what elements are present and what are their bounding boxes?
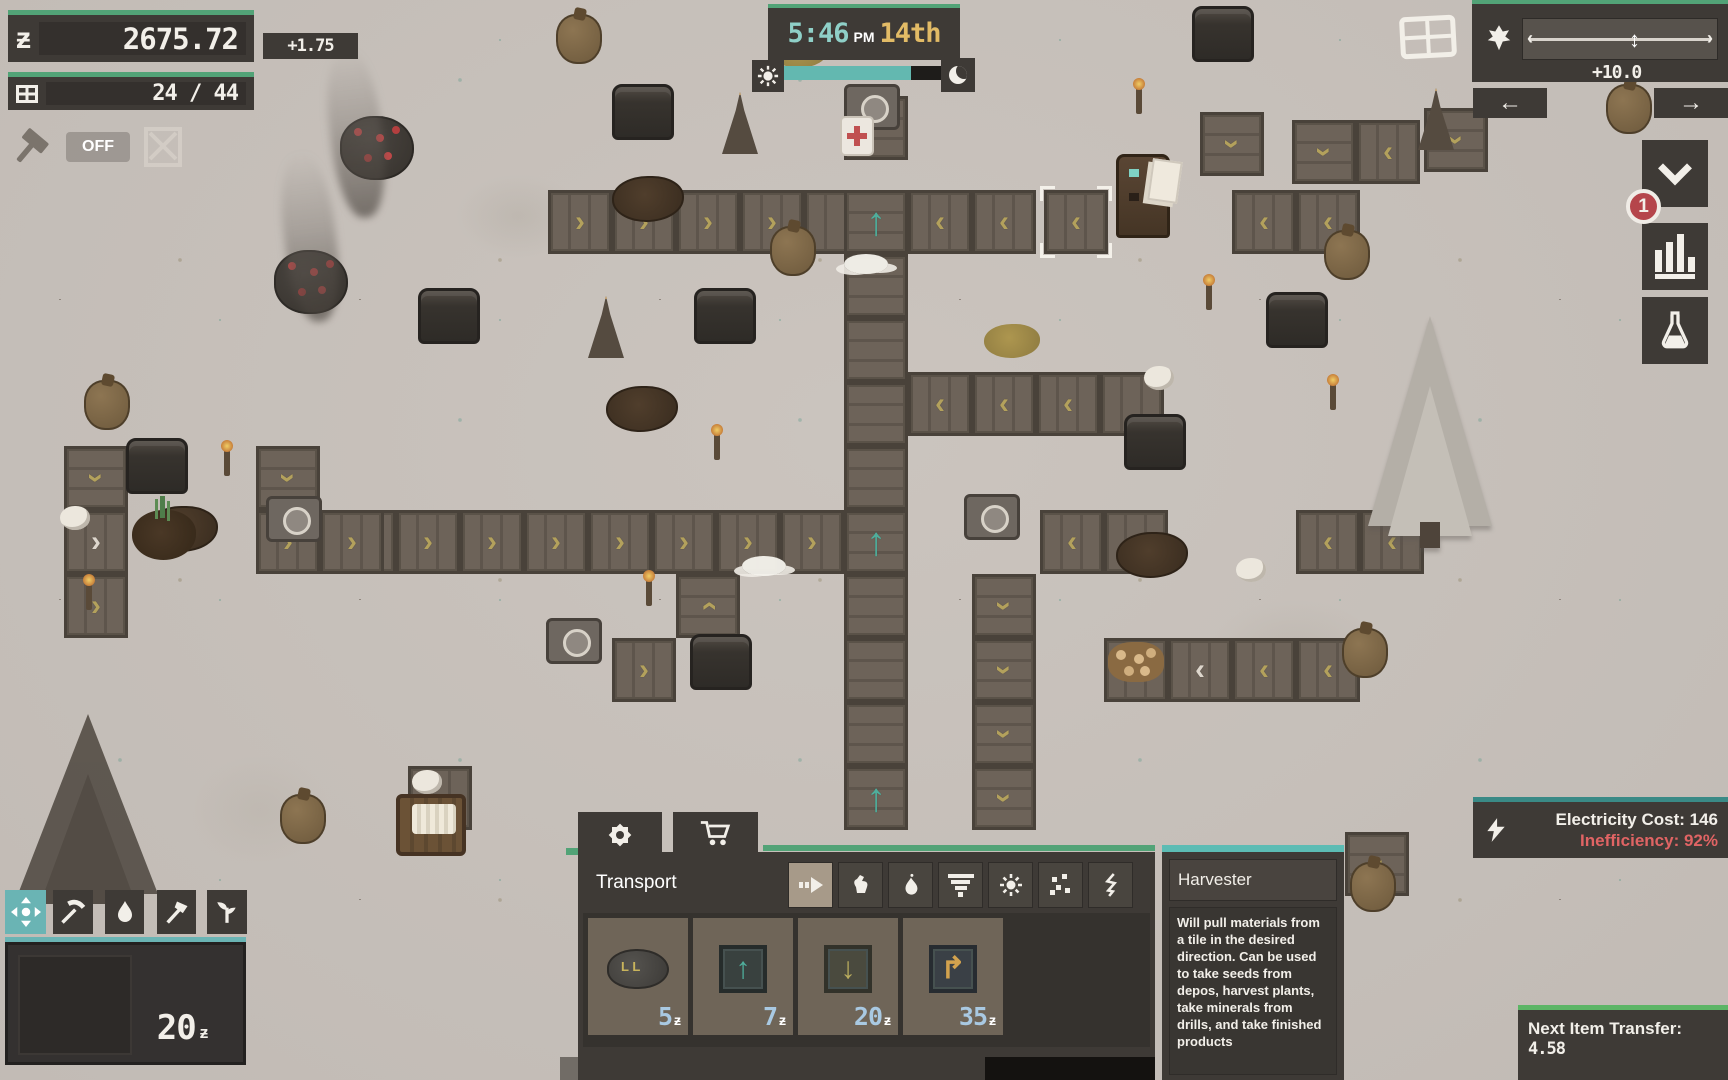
capacity-bar: 24 / 44	[8, 72, 254, 110]
net-grid-icon[interactable]	[1399, 15, 1457, 60]
gizmo-prop[interactable]	[546, 618, 602, 664]
pot-prop[interactable]	[126, 438, 188, 494]
category-energy-button[interactable]	[1088, 862, 1133, 908]
belt-arrow: ‹	[1071, 207, 1081, 237]
flour-prop	[60, 506, 90, 530]
sprout-prop	[132, 510, 196, 560]
zigzag-bolt-icon	[1100, 872, 1122, 898]
chevron-down-icon	[1658, 151, 1692, 185]
underground-sprite: ↱	[929, 945, 977, 993]
gizmo-prop[interactable]	[964, 494, 1020, 540]
belt-arrow: ›	[487, 527, 497, 557]
belt-arrow: ›	[575, 207, 585, 237]
tool-plant-button[interactable]	[207, 890, 247, 934]
cart-prop[interactable]	[396, 794, 466, 856]
day-progress-fill	[784, 66, 911, 80]
currency-icon: ƶ	[989, 1012, 996, 1028]
currency-icon: ƶ	[16, 22, 31, 56]
torch-prop	[1136, 88, 1142, 114]
belt-tile[interactable]: ‹	[1044, 190, 1108, 254]
store-item-harvester[interactable]: ↑ 7ƶ	[693, 918, 793, 1035]
belt-arrow: ›	[551, 527, 561, 557]
belt-tile[interactable]: ›	[1292, 120, 1356, 184]
belt-tile[interactable]: ›	[652, 510, 716, 574]
belt-tile[interactable]: ‹	[908, 190, 972, 254]
gizmo-prop[interactable]	[266, 496, 322, 542]
belt-tile[interactable]	[844, 318, 908, 382]
belt-tile[interactable]: ↑	[844, 766, 908, 830]
belt-tile[interactable]: ‹	[908, 372, 972, 436]
cloud-prop	[742, 556, 786, 576]
belt-tile[interactable]: ›	[320, 510, 384, 574]
clock-meridiem: PM	[854, 29, 875, 45]
store-top-accent	[763, 845, 1155, 851]
item-price: 20	[854, 1002, 882, 1031]
item-price: 35	[959, 1002, 987, 1031]
harvester-sprite: ↑	[719, 945, 767, 993]
belt-arrow: ›	[807, 527, 817, 557]
slider-left-cap[interactable]: ‹	[1527, 29, 1533, 47]
belt-tile[interactable]	[844, 446, 908, 510]
belt-arrow: ‹	[1323, 527, 1333, 557]
research-button[interactable]	[1642, 297, 1708, 364]
belt-arrow: ›	[1217, 139, 1247, 149]
belt-arrow: ›	[91, 591, 101, 621]
belt-tile[interactable]: ‹	[1356, 120, 1420, 184]
belt-arrow: ›	[639, 655, 649, 685]
disabled-box-icon[interactable]	[144, 127, 182, 167]
item-price: 7	[763, 1002, 777, 1031]
sack-prop	[84, 380, 130, 430]
smoke-prop	[320, 45, 392, 220]
derrick-prop	[588, 296, 624, 358]
pot-prop[interactable]	[418, 288, 480, 344]
belt-arrow: ›	[91, 527, 101, 557]
conveyor-icon	[799, 877, 823, 893]
currency-value: 2675.72	[39, 22, 246, 56]
speed-slider-handle[interactable]: ↕	[1628, 27, 1642, 53]
selection-bracket	[1040, 243, 1055, 258]
speed-slider-track[interactable]: ‹ › ↕	[1529, 38, 1711, 41]
belt-tile[interactable]	[844, 574, 908, 638]
bolt-icon	[1483, 815, 1509, 845]
belt-arrow: ›	[679, 527, 689, 557]
slider-right-cap[interactable]: ›	[1707, 29, 1713, 47]
belt-tile[interactable]: ‹	[1296, 510, 1360, 574]
cloud-prop	[844, 254, 888, 274]
belt-tile[interactable]: ›	[972, 766, 1036, 830]
belt-arrow: ‹	[1063, 389, 1073, 419]
speed-panel: ‹ › ↕ +10.0	[1472, 0, 1728, 82]
tool-pickaxe-button[interactable]	[53, 890, 93, 934]
belt-tile[interactable]: ‹	[1040, 510, 1104, 574]
belt-tile[interactable]	[844, 638, 908, 702]
hammer-icon[interactable]	[8, 124, 52, 170]
capacity-icon	[16, 85, 38, 103]
autobuild-toggle[interactable]: OFF	[66, 132, 130, 162]
statistics-button[interactable]	[1642, 223, 1708, 290]
panel-notch	[566, 848, 578, 855]
capacity-value: 24 / 44	[46, 82, 246, 106]
tree-snow	[1368, 316, 1492, 526]
category-title: Transport	[578, 872, 758, 894]
water-drop-icon	[113, 898, 137, 926]
hotbar-black-segment	[985, 1057, 1155, 1080]
belt-arrow: ›	[693, 601, 723, 611]
currency-delta-badge: +1.75	[263, 33, 358, 59]
clock-day: 14th	[880, 18, 941, 49]
torch-prop	[646, 580, 652, 606]
belt-tile[interactable]: ‹	[1232, 190, 1296, 254]
belt-tile[interactable]: ›	[1200, 112, 1264, 176]
drop-icon	[900, 872, 922, 898]
hand-icon	[849, 872, 873, 898]
selection-bracket	[1097, 186, 1112, 201]
pot-prop[interactable]	[694, 288, 756, 344]
category-particles-button[interactable]	[1038, 862, 1083, 908]
sack-prop	[770, 226, 816, 276]
nav-right-button[interactable]: →	[1654, 88, 1728, 118]
clock-panel: 5:46 PM 14th	[768, 4, 960, 60]
pot-prop[interactable]	[1124, 414, 1186, 470]
belt-tile[interactable]: ›	[460, 510, 524, 574]
belt-arrow: ›	[989, 729, 1019, 739]
belt-arrow: ‹	[1195, 655, 1205, 685]
flour-prop	[1144, 366, 1174, 390]
belt-tile[interactable]: ›	[612, 638, 676, 702]
flask-icon	[1657, 311, 1693, 351]
pickaxe-icon	[59, 898, 87, 926]
derrick-prop	[722, 92, 758, 154]
belt-tile[interactable]: ›	[396, 510, 460, 574]
conveyor-pile-sprite	[607, 949, 669, 989]
selection-bracket	[1097, 243, 1112, 258]
belt-arrow: ‹	[1259, 655, 1269, 685]
belt-arrow: ›	[743, 527, 753, 557]
sun-icon	[752, 60, 784, 92]
selection-bracket	[1040, 186, 1055, 201]
belt-arrow-teal: ↑	[866, 202, 886, 242]
tool-water-button[interactable]	[105, 890, 144, 934]
electricity-panel: Electricity Cost: 146 Inefficiency: 92%	[1473, 797, 1728, 858]
pot-prop[interactable]	[1192, 6, 1254, 62]
gear-icon	[607, 822, 633, 848]
belt-arrow: ‹	[1383, 137, 1393, 167]
category-filter-button[interactable]	[938, 862, 983, 908]
category-hand-button[interactable]	[838, 862, 883, 908]
flour-prop	[1236, 558, 1266, 582]
belt-arrow-teal: ↑	[866, 778, 886, 818]
inefficiency: Inefficiency: 92%	[1509, 830, 1718, 851]
belt-arrow: ‹	[1259, 207, 1269, 237]
next-transfer-panel: Next Item Transfer: 4.58	[1518, 1005, 1728, 1080]
torch-prop	[224, 450, 230, 476]
tree-dead	[18, 714, 158, 894]
category-conveyor-button[interactable]	[788, 862, 833, 908]
dirt-prop	[606, 386, 678, 432]
tooltip-title: Harvester	[1169, 859, 1337, 901]
nav-left-button[interactable]: ←	[1473, 88, 1547, 118]
electricity-cost: Electricity Cost: 146	[1509, 809, 1718, 830]
category-row	[788, 862, 1133, 908]
belt-tile[interactable]: ›	[548, 190, 612, 254]
torch-prop	[714, 434, 720, 460]
sack-prop	[280, 794, 326, 844]
belt-arrow: ‹	[1323, 207, 1333, 237]
tooltip-description: Will pull materials from a tile in the d…	[1169, 907, 1337, 1075]
store-panel: Transport	[578, 852, 1155, 1080]
bar-chart-icon	[1655, 234, 1695, 279]
category-liquid-button[interactable]	[888, 862, 933, 908]
inserter-sprite: ↓	[824, 945, 872, 993]
pot-prop[interactable]	[612, 84, 674, 140]
belt-arrow: ‹	[1323, 655, 1333, 685]
belt-arrow: ›	[703, 207, 713, 237]
sack-prop	[1324, 230, 1370, 280]
sack-prop	[556, 14, 602, 64]
belt-arrow: ‹	[999, 207, 1009, 237]
belt-tile[interactable]: ‹	[972, 190, 1036, 254]
wallet-panel: 20 ƶ	[5, 942, 246, 1065]
currency-bar: ƶ 2675.72	[8, 10, 254, 62]
autobuild-row: OFF	[8, 124, 182, 170]
belt-arrow: ›	[347, 527, 357, 557]
seedling-icon	[214, 898, 240, 926]
store-items: 5ƶ ↑ 7ƶ ↓ 20ƶ ↱ 35ƶ	[583, 913, 1150, 1047]
belt-arrow: ›	[423, 527, 433, 557]
golddirt-prop	[984, 324, 1040, 358]
belt-tile[interactable]: ›	[64, 574, 128, 638]
cookie-prop[interactable]	[1108, 642, 1164, 682]
axe-icon	[163, 898, 191, 926]
category-power-button[interactable]	[988, 862, 1033, 908]
currency-icon: ƶ	[884, 1012, 891, 1028]
wallet-value: 20	[157, 1008, 196, 1048]
next-transfer-value: 4.58	[1528, 1039, 1718, 1060]
wallet-slot[interactable]	[18, 955, 132, 1055]
belt-arrow: ›	[81, 473, 111, 483]
belt-arrow: ‹	[999, 389, 1009, 419]
item-price: 5	[658, 1002, 672, 1031]
belt-arrow: ›	[989, 665, 1019, 675]
tab-shop[interactable]	[673, 812, 758, 853]
next-transfer-label: Next Item Transfer:	[1528, 1018, 1718, 1039]
moon-icon	[941, 58, 975, 92]
belt-tile[interactable]: ›	[588, 510, 652, 574]
speed-value: +10.0	[1592, 62, 1641, 83]
store-item-underground[interactable]: ↱ 35ƶ	[903, 918, 1003, 1035]
belt-tile[interactable]: ›	[64, 446, 128, 510]
alert-count: 1	[1638, 196, 1649, 218]
store-item-inserter[interactable]: ↓ 20ƶ	[798, 918, 898, 1035]
belt-arrow: ‹	[1067, 527, 1077, 557]
currency-icon: ƶ	[674, 1012, 681, 1028]
belt-arrow: ›	[989, 793, 1019, 803]
belt-tile[interactable]: ‹	[1168, 638, 1232, 702]
belt-tile[interactable]: ›	[676, 574, 740, 638]
belt-tile[interactable]: ›	[524, 510, 588, 574]
clock-time: 5:46	[787, 18, 848, 49]
sunburst-icon	[999, 873, 1023, 897]
belt-tile[interactable]: ‹	[1036, 372, 1100, 436]
belt-tile[interactable]: ›	[972, 638, 1036, 702]
sack-prop	[1606, 84, 1652, 134]
item-tooltip: Harvester Will pull materials from a til…	[1162, 845, 1344, 1080]
medkit-prop[interactable]	[840, 116, 874, 156]
torch-prop	[86, 584, 92, 610]
papers-prop	[1147, 158, 1183, 204]
belt-tile[interactable]: ‹	[972, 372, 1036, 436]
belt-tile[interactable]: ›	[676, 190, 740, 254]
belt-tile[interactable]	[844, 702, 908, 766]
dirt-prop	[1116, 532, 1188, 578]
wallet-currency-icon: ƶ	[200, 1023, 209, 1048]
belt-tile[interactable]: ›	[972, 702, 1036, 766]
tool-move-button[interactable]	[5, 890, 46, 934]
funnel-icon	[948, 874, 974, 897]
belt-tile[interactable]: ›	[780, 510, 844, 574]
pot-prop[interactable]	[690, 634, 752, 690]
belt-arrow: ‹	[935, 207, 945, 237]
belt-arrow-teal: ↑	[866, 522, 886, 562]
currency-delta: +1.75	[287, 36, 333, 56]
belt-tile[interactable]: ›	[972, 574, 1036, 638]
particles-icon	[1050, 874, 1072, 896]
torch-prop	[1206, 284, 1212, 310]
alert-badge[interactable]: 1	[1626, 189, 1661, 224]
day-progress-bar	[784, 66, 941, 80]
belt-arrow: ›	[273, 473, 303, 483]
cart-icon	[699, 819, 733, 847]
belt-tile[interactable]	[844, 382, 908, 446]
belt-tile[interactable]: ↑	[844, 190, 908, 254]
torch-prop	[1330, 384, 1336, 410]
move-icon	[11, 897, 41, 927]
leaf-icon	[1484, 24, 1514, 54]
currency-icon: ƶ	[779, 1012, 786, 1028]
sack-prop	[1342, 628, 1388, 678]
belt-arrow: ‹	[935, 389, 945, 419]
speed-slider[interactable]: ‹ › ↕	[1522, 18, 1718, 60]
tab-build[interactable]	[578, 812, 662, 858]
sack-prop	[1350, 862, 1396, 912]
belt-arrow: ›	[1309, 147, 1339, 157]
flour-prop	[412, 770, 442, 794]
belt-arrow: ›	[989, 601, 1019, 611]
tool-axe-button[interactable]	[157, 890, 196, 934]
belt-tile[interactable]: ‹	[1232, 638, 1296, 702]
pot-prop[interactable]	[1266, 292, 1328, 348]
belt-tile[interactable]: ↑	[844, 510, 908, 574]
store-item-conveyor-pile[interactable]: 5ƶ	[588, 918, 688, 1035]
belt-arrow: ›	[615, 527, 625, 557]
